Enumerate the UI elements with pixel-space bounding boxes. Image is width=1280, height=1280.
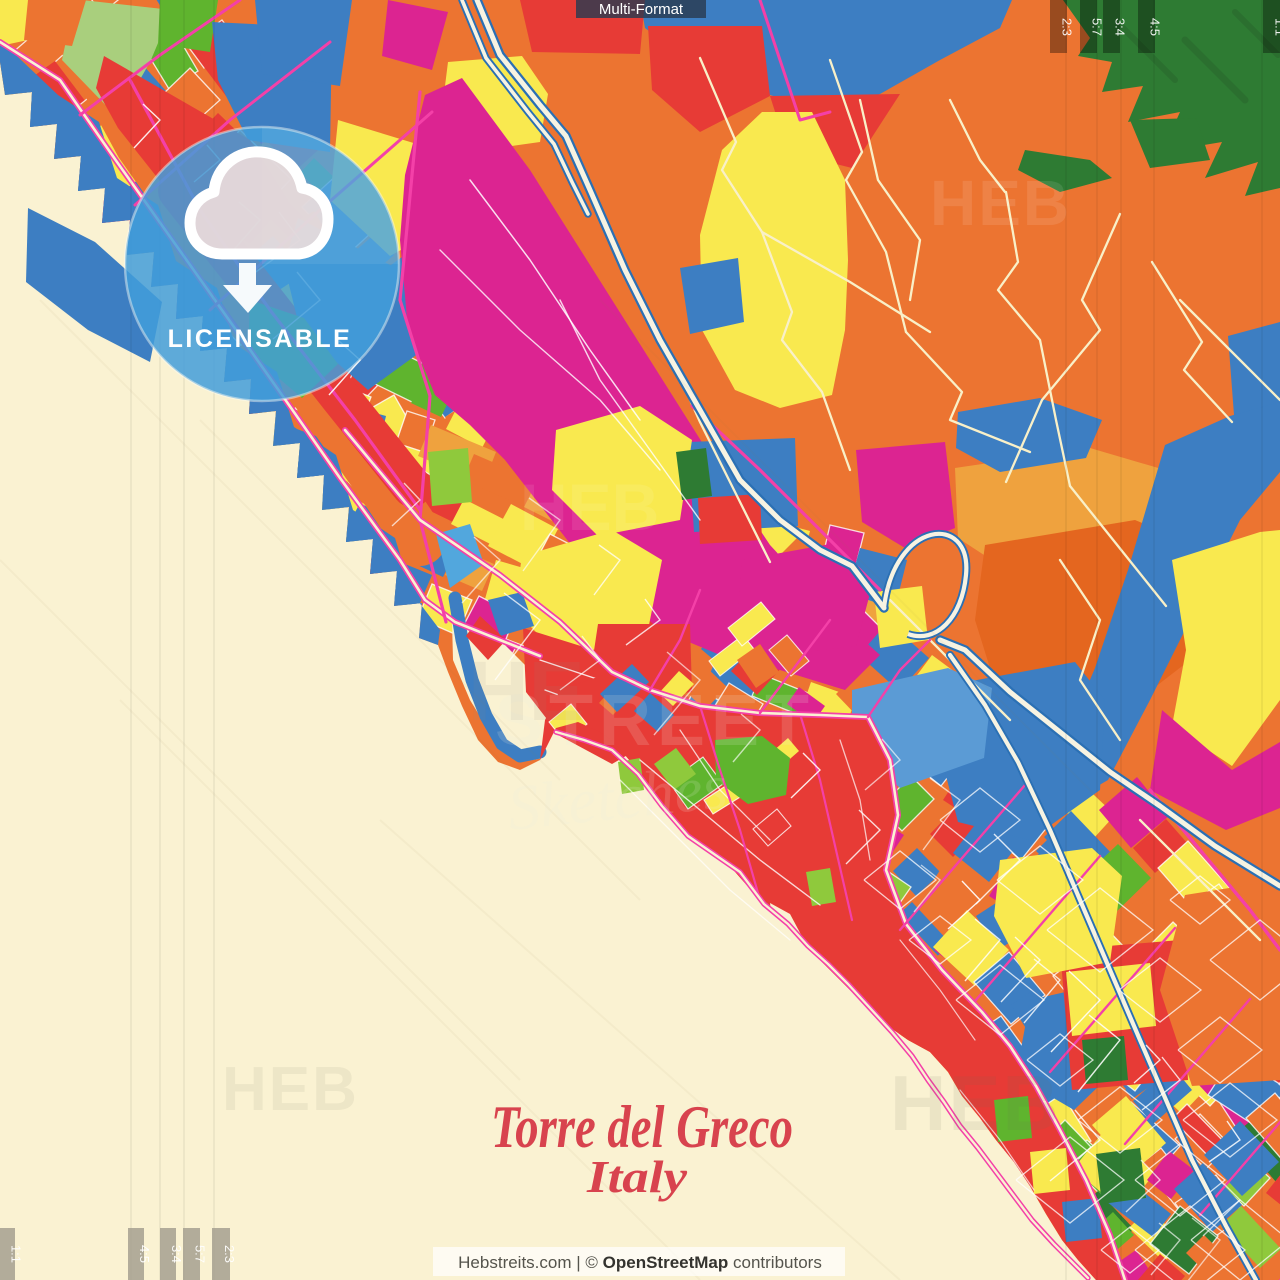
svg-text:5:7: 5:7 bbox=[1090, 18, 1105, 36]
svg-text:Hebstreits.com | © OpenStreetM: Hebstreits.com | © OpenStreetMap contrib… bbox=[458, 1253, 822, 1272]
svg-text:Multi-Format: Multi-Format bbox=[599, 1, 684, 18]
svg-text:LICENSABLE: LICENSABLE bbox=[168, 325, 353, 353]
svg-text:4:5: 4:5 bbox=[1148, 18, 1163, 36]
svg-text:3:4: 3:4 bbox=[169, 1245, 184, 1263]
svg-text:4:5: 4:5 bbox=[137, 1245, 152, 1263]
svg-text:HEB: HEB bbox=[930, 167, 1071, 239]
svg-text:HEB: HEB bbox=[222, 1055, 359, 1124]
svg-text:3:4: 3:4 bbox=[1113, 18, 1128, 36]
svg-text:2:3: 2:3 bbox=[1060, 18, 1075, 36]
svg-text:1:1: 1:1 bbox=[1273, 18, 1280, 36]
svg-text:HEB: HEB bbox=[520, 470, 659, 544]
svg-text:Italy: Italy bbox=[586, 1151, 688, 1202]
svg-text:HE: HE bbox=[468, 644, 585, 738]
svg-text:5:7: 5:7 bbox=[193, 1245, 208, 1263]
svg-text:HEB: HEB bbox=[890, 1059, 1061, 1147]
svg-text:2:3: 2:3 bbox=[222, 1245, 237, 1263]
svg-text:1:1: 1:1 bbox=[9, 1245, 24, 1263]
